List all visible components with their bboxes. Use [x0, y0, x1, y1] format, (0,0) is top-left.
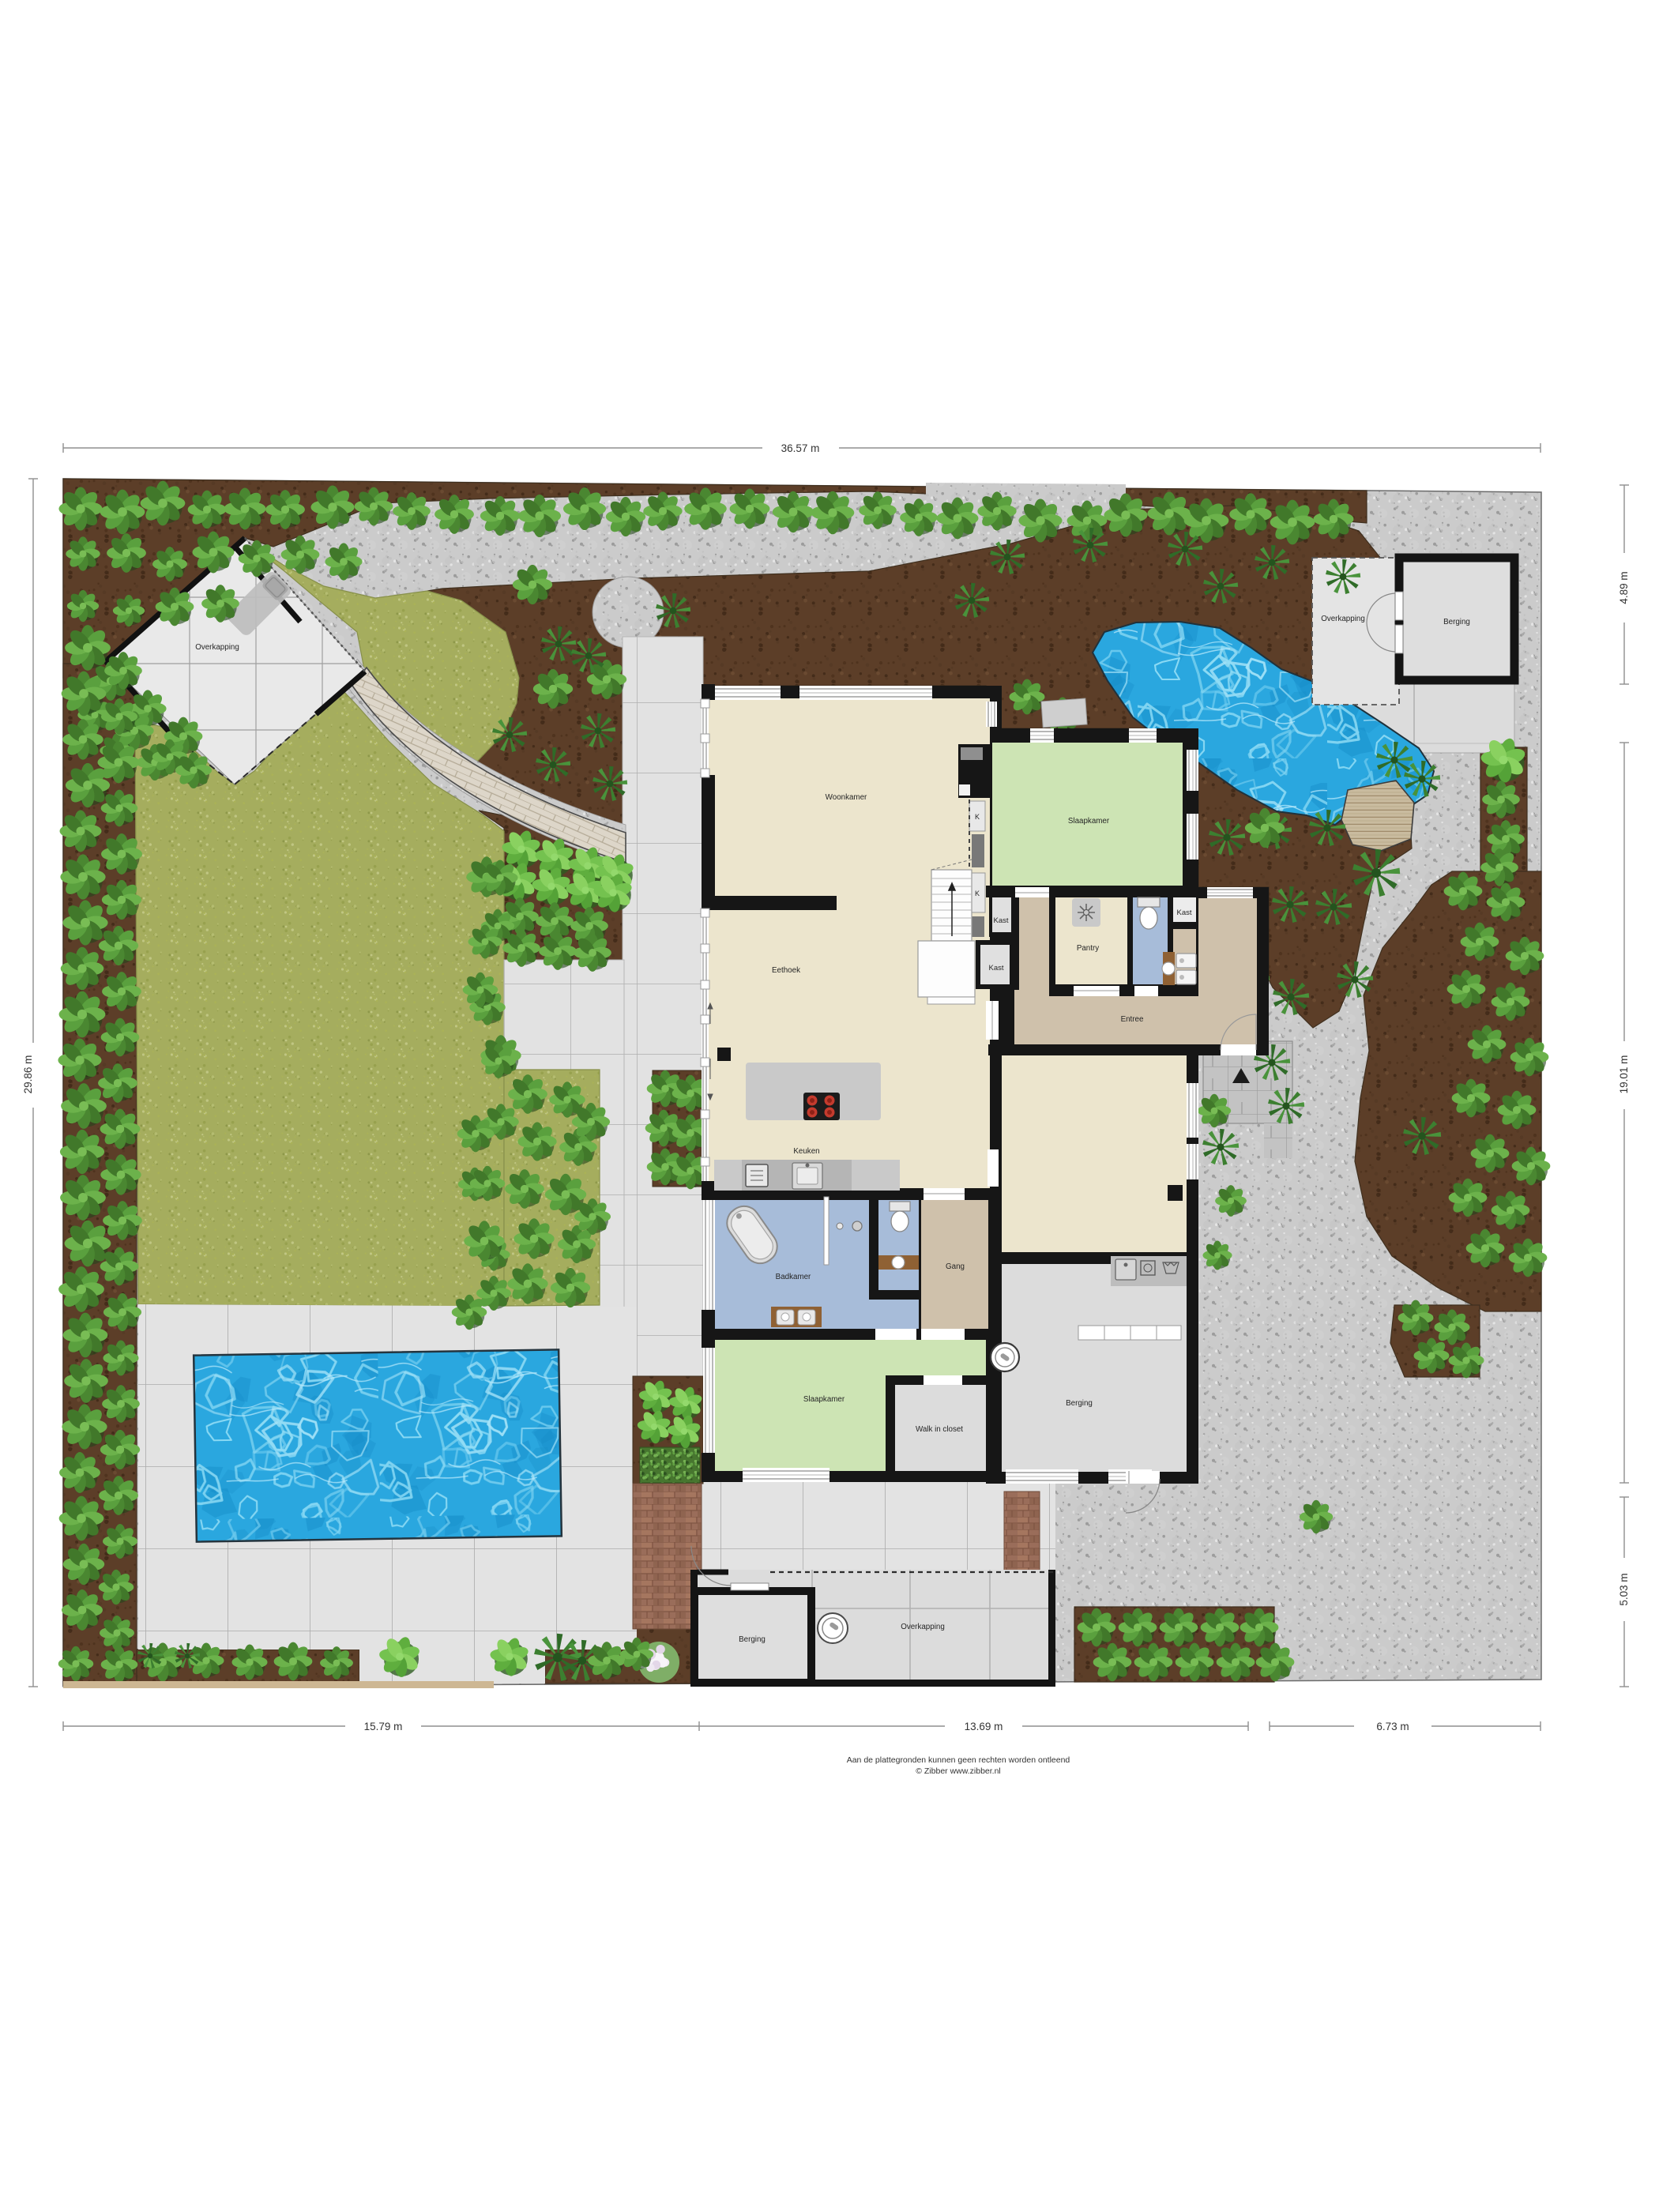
- svg-text:Woonkamer: Woonkamer: [826, 793, 867, 802]
- svg-text:Kast: Kast: [993, 916, 1008, 925]
- svg-text:Berging: Berging: [739, 1635, 766, 1644]
- svg-text:© Zibber www.zibber.nl: © Zibber www.zibber.nl: [916, 1766, 1001, 1776]
- svg-text:Eethoek: Eethoek: [772, 966, 800, 975]
- svg-text:Badkamer: Badkamer: [776, 1273, 811, 1281]
- svg-text:Aan de plattegronden kunnen ge: Aan de plattegronden kunnen geen rechten…: [847, 1755, 1070, 1765]
- svg-text:K: K: [975, 813, 980, 821]
- svg-text:Pantry: Pantry: [1077, 944, 1099, 953]
- svg-text:36.57 m: 36.57 m: [781, 442, 820, 454]
- svg-text:K: K: [975, 890, 980, 897]
- svg-text:Overkapping: Overkapping: [195, 643, 239, 652]
- svg-text:19.01 m: 19.01 m: [1618, 1055, 1630, 1094]
- svg-text:Kast: Kast: [988, 964, 1003, 972]
- svg-text:Slaapkamer: Slaapkamer: [1068, 817, 1110, 826]
- svg-text:29.86 m: 29.86 m: [22, 1055, 34, 1094]
- svg-text:Overkapping: Overkapping: [901, 1623, 945, 1631]
- svg-text:13.69 m: 13.69 m: [965, 1721, 1003, 1732]
- svg-text:Berging: Berging: [1443, 618, 1470, 626]
- svg-text:Slaapkamer: Slaapkamer: [803, 1395, 845, 1404]
- svg-text:Overkapping: Overkapping: [1321, 615, 1365, 623]
- svg-text:Berging: Berging: [1066, 1399, 1093, 1408]
- svg-text:15.79 m: 15.79 m: [364, 1721, 403, 1732]
- svg-text:Entree: Entree: [1121, 1015, 1144, 1024]
- svg-text:Keuken: Keuken: [793, 1147, 819, 1156]
- svg-text:Kast: Kast: [1176, 908, 1191, 917]
- svg-text:6.73 m: 6.73 m: [1376, 1721, 1409, 1732]
- svg-text:Walk in closet: Walk in closet: [916, 1425, 963, 1434]
- svg-text:4.89 m: 4.89 m: [1618, 571, 1630, 604]
- svg-text:Gang: Gang: [946, 1262, 965, 1271]
- svg-text:5.03 m: 5.03 m: [1618, 1573, 1630, 1605]
